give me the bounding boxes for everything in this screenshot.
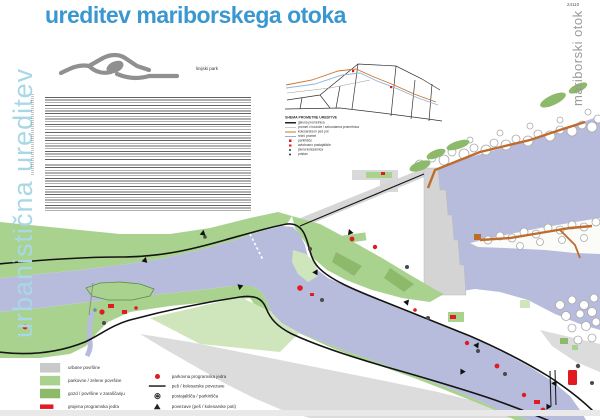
legend-label: peš / kolesarske povezave xyxy=(172,384,225,389)
legend-swatch xyxy=(40,404,53,408)
scheme-legend-label: parkirišče xyxy=(298,139,312,143)
scheme-legend-icon xyxy=(285,127,296,128)
scheme-legend-label: pristan xyxy=(298,153,308,157)
legend-row: povezave (peš / kolesarske poti) xyxy=(146,404,381,410)
legend-row: parkovna programska jedra xyxy=(146,374,381,379)
legend-swatch xyxy=(40,376,60,386)
left-vertical-title: urbanistična ureditev xyxy=(8,68,39,338)
logo-label: linijski park xyxy=(196,66,218,71)
scheme-legend-label: avtobusno postajališče xyxy=(298,144,331,148)
legend-label: parkovne / zelene površine xyxy=(68,378,122,383)
linear-park-logo xyxy=(58,46,183,86)
page-title: ureditev mariborskega otoka xyxy=(45,2,346,29)
traffic-scheme-legend: SHEMA PROMETNE UREDITVE glavna prometnic… xyxy=(285,116,395,157)
scheme-legend-icon xyxy=(289,144,292,146)
scheme-legend-icon xyxy=(285,136,296,137)
poster: urbanistična ureditev ureditev mariborsk… xyxy=(0,0,600,420)
legend-label: urbane površine xyxy=(68,365,100,370)
scheme-legend-icon xyxy=(285,122,296,123)
sheet-number: 24110 xyxy=(567,2,579,7)
legend-row: postajališča / parkirišča xyxy=(146,393,381,399)
legend-swatch xyxy=(40,363,60,373)
legend-label: povezave (peš / kolesarske poti) xyxy=(172,404,236,409)
scheme-legend-rows: glavna prometnica promet v bodoče / seku… xyxy=(285,121,395,157)
scheme-legend-row: pristan xyxy=(285,152,395,157)
scheme-legend-icon xyxy=(289,149,291,151)
scheme-legend-label: promet v bodoče / sekundarna prometnica xyxy=(298,126,359,130)
legend-label: parkovna programska jedra xyxy=(172,374,227,379)
body-text-block xyxy=(45,97,251,211)
legend-symbol-icon xyxy=(154,404,161,410)
scheme-legend-label: rečni promet xyxy=(298,135,316,139)
legend-symbol-icon xyxy=(154,393,160,399)
legend-row: peš / kolesarske povezave xyxy=(146,384,381,389)
scheme-legend-label: kolesarska in peš pot xyxy=(298,130,329,134)
legend-symbol-icon xyxy=(149,385,166,387)
scheme-legend-icon xyxy=(289,153,291,155)
legend-row: urbane površine xyxy=(40,363,264,373)
legend-label: gozd / površine v zaraščanju xyxy=(68,391,125,396)
pier-node-blue xyxy=(93,308,97,312)
right-vertical-title: mariborski otok xyxy=(570,10,585,106)
scheme-legend-title: SHEMA PROMETNE UREDITVE xyxy=(285,116,395,120)
scheme-legend-label: javna kolesarnica xyxy=(298,148,323,152)
scheme-legend-label: glavna prometnica xyxy=(298,121,325,125)
scheme-legend-icon xyxy=(285,131,296,132)
orange-node xyxy=(474,234,481,240)
legend-swatch xyxy=(40,389,60,399)
map-legend-symbols: parkovna programska jedra peš / kolesars… xyxy=(146,374,381,414)
scheme-legend-icon xyxy=(289,140,292,143)
legend-label: grajena programska jedra xyxy=(68,404,119,409)
legend-symbol-icon xyxy=(155,374,160,379)
legend-label: postajališča / parkirišča xyxy=(172,394,218,399)
traffic-scheme-inset xyxy=(285,64,442,121)
credit-micro-text xyxy=(31,93,34,175)
